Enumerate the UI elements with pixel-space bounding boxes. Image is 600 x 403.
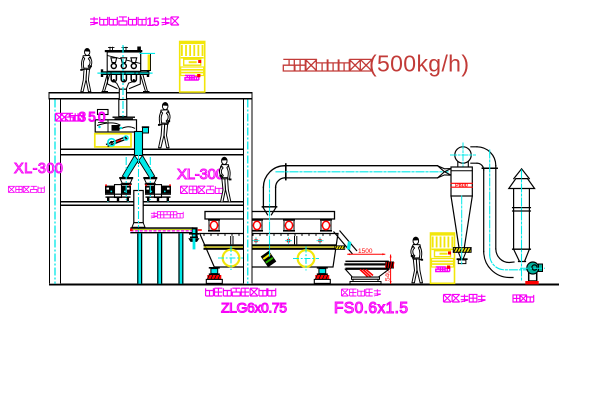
svg-text:1500: 1500 — [358, 248, 373, 255]
svg-text:XL-300: XL-300 — [14, 161, 63, 177]
svg-text:ZLG6x0.75: ZLG6x0.75 — [221, 300, 287, 316]
svg-text:XL-300: XL-300 — [177, 166, 224, 183]
svg-text:350: 350 — [79, 110, 106, 125]
svg-text:(500kg/h): (500kg/h) — [369, 51, 469, 77]
svg-text:P800: P800 — [455, 183, 468, 189]
svg-text:FS0.6x1.5: FS0.6x1.5 — [334, 300, 408, 317]
svg-text:1.5: 1.5 — [147, 17, 161, 29]
